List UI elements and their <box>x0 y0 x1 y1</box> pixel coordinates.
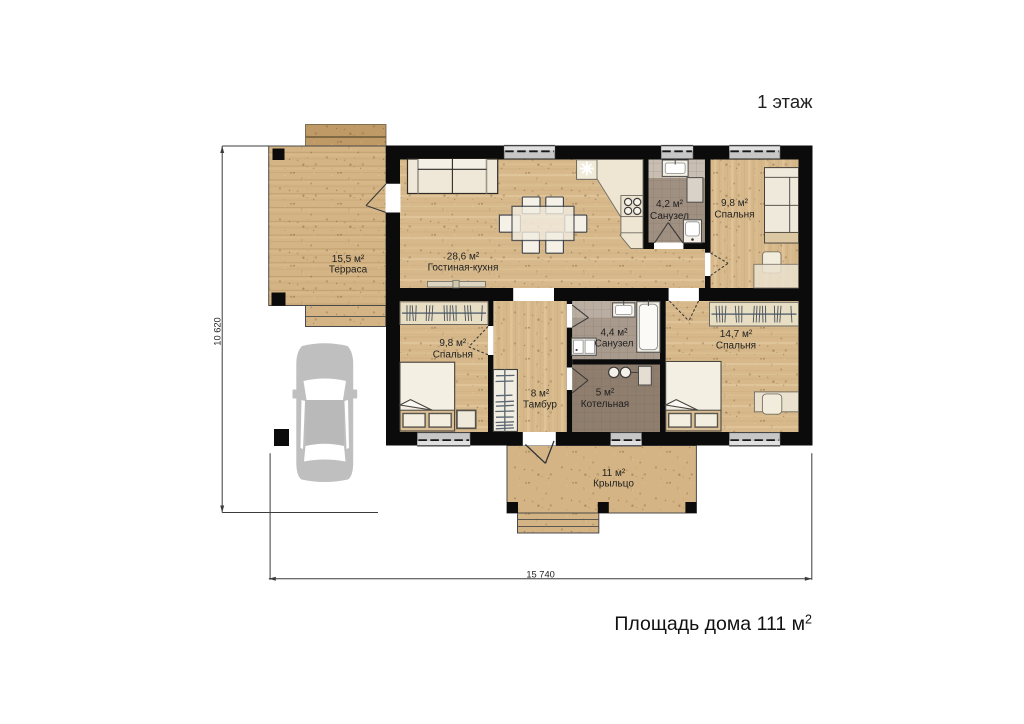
svg-text:4,2 м²: 4,2 м² <box>656 199 684 210</box>
svg-text:5 м²: 5 м² <box>596 388 615 399</box>
svg-text:9,8 м²: 9,8 м² <box>439 338 467 349</box>
svg-text:15 740: 15 740 <box>526 569 554 579</box>
svg-text:15,5 м²: 15,5 м² <box>332 254 365 265</box>
svg-text:10 620: 10 620 <box>212 317 222 345</box>
svg-text:Спальня: Спальня <box>433 350 473 361</box>
svg-text:4,4 м²: 4,4 м² <box>601 328 629 339</box>
svg-text:14,7 м²: 14,7 м² <box>720 329 753 340</box>
svg-text:Спальня: Спальня <box>714 210 754 221</box>
svg-text:11 м²: 11 м² <box>602 468 626 479</box>
svg-text:9,8 м²: 9,8 м² <box>721 198 749 209</box>
svg-text:1 этаж: 1 этаж <box>757 91 813 112</box>
svg-text:Санузел: Санузел <box>650 211 689 222</box>
svg-text:8 м²: 8 м² <box>531 389 550 400</box>
svg-text:28,6 м²: 28,6 м² <box>447 252 480 263</box>
svg-text:Площадь дома 111 м2: Площадь дома 111 м2 <box>614 613 812 636</box>
svg-text:Крыльцо: Крыльцо <box>593 479 634 490</box>
svg-text:Тамбур: Тамбур <box>523 399 557 411</box>
svg-text:Котельная: Котельная <box>581 399 629 410</box>
svg-text:Спальня: Спальня <box>716 341 756 352</box>
svg-text:Гостиная-кухня: Гостиная-кухня <box>428 263 499 274</box>
svg-text:Терраса: Терраса <box>329 265 368 276</box>
svg-text:Санузел: Санузел <box>595 339 634 350</box>
